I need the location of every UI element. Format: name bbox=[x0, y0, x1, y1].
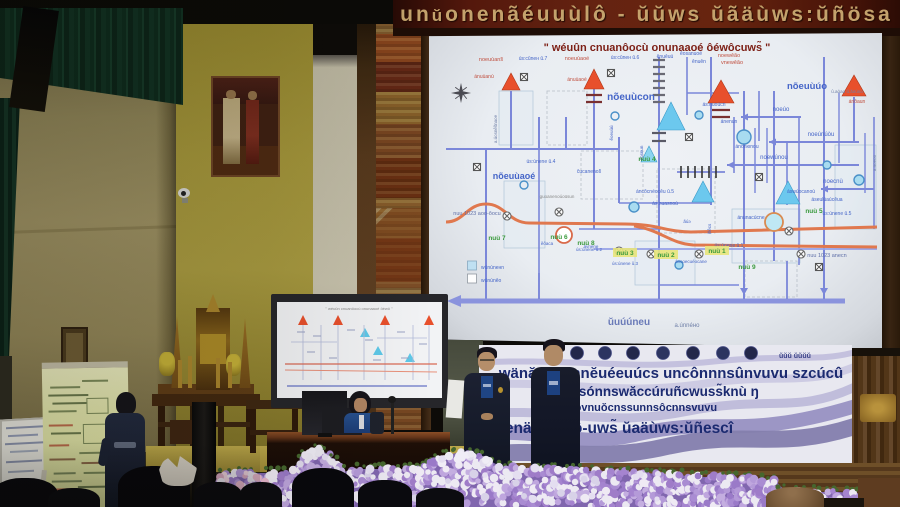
svg-text:nuù 5: nuù 5 bbox=[805, 208, 823, 215]
svg-text:ús:únene û.4: ús:únene û.4 bbox=[527, 159, 556, 165]
svg-text:ěnuêuú: ěnuêuú bbox=[657, 54, 674, 60]
svg-text:nuu 1023 aneсn: nuu 1023 aneсn bbox=[807, 253, 846, 259]
svg-text:nõeuùcon: nõeuùcon bbox=[607, 92, 655, 103]
svg-text:ánenun: ánenun bbox=[721, 119, 738, 125]
svg-text:ěnuěn: ěnuěn bbox=[692, 59, 706, 65]
svg-text:a.únnéно: a.únnéно bbox=[674, 323, 700, 329]
svg-text:nuu 1023 aoо-õocu: nuu 1023 aoо-õocu bbox=[453, 211, 500, 217]
svg-text:nuù 1: nuù 1 bbox=[708, 248, 726, 255]
svg-text:noeúо: noeúо bbox=[773, 107, 790, 113]
svg-text:ŭŭŭ ŭŭŭŭ: ŭŭŭ ŭŭŭŭ bbox=[779, 353, 811, 360]
svg-text:ás:nuasnoú: ás:nuasnoú bbox=[652, 201, 678, 207]
svg-text:noewúnou: noewúnou bbox=[760, 155, 788, 161]
svg-text:ás:nuoúcn: ás:nuoúcn bbox=[702, 102, 725, 108]
svg-text:ús:únene û.3: ús:únene û.3 bbox=[612, 261, 639, 266]
svg-text:ěoeuúú: ěoeuúú bbox=[609, 125, 614, 141]
svg-text:nuù 4: nuù 4 bbox=[638, 156, 656, 163]
svg-text:û.aάaα û.ănúnо: û.aάaα û.ănúnо bbox=[831, 88, 863, 94]
svg-text:áncoecuéocane: áncoecuéocane bbox=[675, 259, 707, 264]
svg-text:ñlêcs: ñlêcs bbox=[707, 223, 712, 234]
svg-text:nõeuùúо: nõeuùúо bbox=[787, 81, 827, 92]
svg-text:ús:cûnен û.7: ús:cûnен û.7 bbox=[519, 56, 548, 62]
svg-text:ús:únene û.5: ús:únene û.5 bbox=[823, 211, 852, 217]
svg-text:ús:cûnен û.6: ús:cûnен û.6 bbox=[611, 55, 640, 61]
svg-text:noecnù: noecnù bbox=[823, 179, 843, 185]
svg-text:noeúnúòu: noeúnúòu bbox=[808, 132, 835, 138]
svg-text:ánunаcúcne: ánunаcúcne bbox=[737, 215, 764, 221]
svg-text:noewêão: noewêão bbox=[718, 53, 740, 59]
svg-text:nõeuùaoé: nõeuùaoé bbox=[493, 171, 536, 181]
svg-text:nuù 9: nuù 9 bbox=[738, 264, 756, 271]
svg-text:nuù 8: nuù 8 bbox=[577, 240, 595, 247]
svg-text:áncõcnéоcêu û.5: áncõcnéоcêu û.5 bbox=[636, 189, 674, 195]
svg-text:čucanenos̃: čucanenos̃ bbox=[577, 169, 602, 175]
svg-text:ŭuúúneu: ŭuúúneu bbox=[608, 317, 650, 328]
svg-text:nuù 7: nuù 7 bbox=[488, 235, 506, 242]
svg-text:ánońюnou: ánońюnou bbox=[735, 144, 758, 150]
svg-text:a.noeoо: a.noeoо bbox=[872, 154, 877, 171]
svg-text:nuù 2: nuù 2 bbox=[657, 252, 675, 259]
svg-text:ěosanuoé: ěosanuoé bbox=[680, 51, 702, 57]
svg-text:wúnúnенn: wúnúnенn bbox=[481, 265, 504, 271]
svg-text:ásеulúaúcêua: ásеulúaúcêua bbox=[811, 197, 842, 203]
svg-text:áswúocanoú: áswúocanoú bbox=[787, 189, 815, 195]
svg-text:ánôaun: ánôaun bbox=[849, 99, 866, 105]
svg-text:ánuùaoé: ánuùaoé bbox=[567, 77, 587, 83]
svg-text:ěõaca: ěõaca bbox=[541, 241, 554, 246]
svg-text:guoanenoúoüsun: guoanenoúoüsun bbox=[540, 194, 575, 199]
svg-text:wúnúnêо: wúnúnêо bbox=[481, 278, 502, 284]
svg-text:ús:únene û.2: ús:únene û.2 bbox=[576, 247, 603, 252]
svg-text:ãúэ: ãúэ bbox=[683, 219, 691, 224]
svg-text:noeuùans̃: noeuùans̃ bbox=[479, 57, 503, 63]
svg-text:ŭasónnswăccúruñcwuss̃knù ŋ: ŭasónnswăccúruñcwuss̃knù ŋ bbox=[563, 384, 759, 399]
svg-text:nuù 3: nuù 3 bbox=[616, 250, 634, 257]
svg-text:a.úosnês̃naoе: a.úosnês̃naoе bbox=[493, 114, 498, 143]
svg-text:noeuùaoé: noeuùaoé bbox=[565, 56, 589, 62]
svg-text:vnewêão: vnewêão bbox=[721, 60, 743, 66]
svg-text:nuù 6: nuù 6 bbox=[550, 234, 568, 241]
svg-text:" wéuûn cnuanôocù onunaaoé ôéw: " wéuûn cnuanôocù onunaaoé ôéwô " bbox=[325, 306, 393, 311]
svg-text:ánuùanù: ánuùanù bbox=[474, 74, 494, 80]
